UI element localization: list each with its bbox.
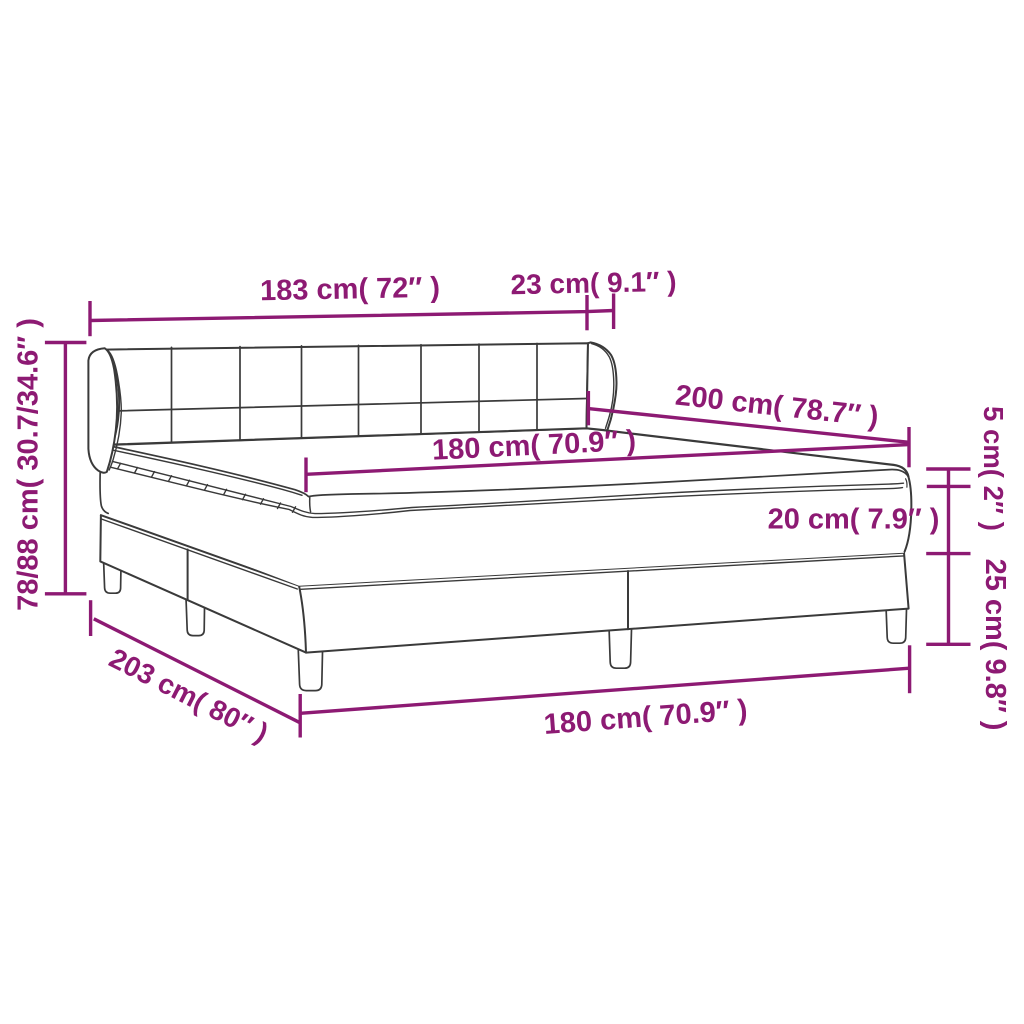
svg-text:20 cm( 7.9″ ): 20 cm( 7.9″ ) [768, 504, 940, 536]
svg-text:23 cm( 9.1″ ): 23 cm( 9.1″ ) [510, 266, 677, 300]
svg-text:78/88 cm( 30.7/34.6″ ): 78/88 cm( 30.7/34.6″ ) [13, 318, 45, 611]
svg-text:183 cm( 72″ ): 183 cm( 72″ ) [260, 272, 441, 307]
svg-text:25 cm( 9.8″ ): 25 cm( 9.8″ ) [979, 559, 1011, 731]
svg-text:5 cm( 2″ ): 5 cm( 2″ ) [978, 406, 1009, 531]
